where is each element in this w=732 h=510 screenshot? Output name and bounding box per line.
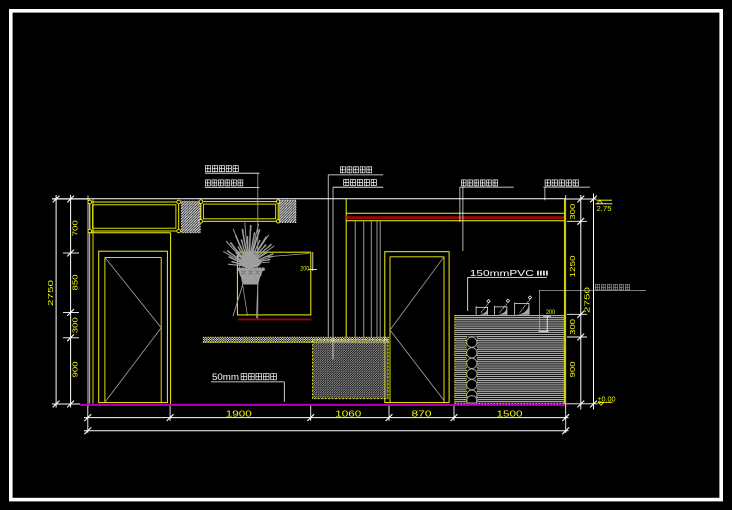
svg-text:900: 900 [71, 362, 80, 378]
svg-text:900: 900 [568, 362, 577, 378]
svg-text:850: 850 [71, 275, 80, 291]
svg-text:700: 700 [71, 220, 80, 236]
svg-text:2750: 2750 [46, 280, 55, 306]
svg-text:300: 300 [568, 319, 577, 335]
svg-text:870: 870 [412, 410, 433, 419]
svg-text:200: 200 [300, 265, 309, 272]
svg-text:2750: 2750 [582, 287, 591, 313]
svg-text:50mm: 50mm [212, 372, 239, 382]
svg-text:2.75: 2.75 [597, 204, 612, 213]
svg-text:1060: 1060 [335, 410, 362, 419]
svg-text:200: 200 [546, 309, 555, 316]
svg-text:300: 300 [71, 317, 80, 333]
svg-text:1900: 1900 [226, 410, 253, 419]
svg-text:1500: 1500 [497, 410, 524, 419]
svg-text:150mmPVC: 150mmPVC [470, 268, 534, 278]
svg-text:1250: 1250 [568, 256, 577, 278]
svg-text:300: 300 [568, 204, 577, 220]
